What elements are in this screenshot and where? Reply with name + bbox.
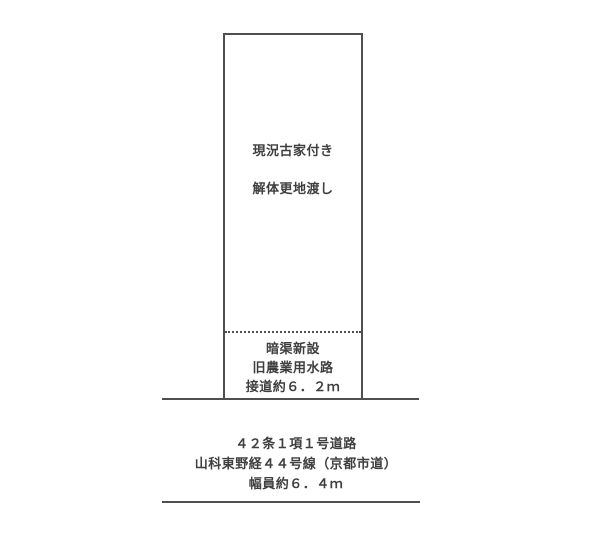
parcel-outline: 現況古家付き 解体更地渡し 暗渠新設 旧農業用水路 接道約６．２ｍ	[223, 33, 363, 400]
parcel-condition-notes: 現況古家付き 解体更地渡し	[225, 145, 361, 197]
waterway-notes: 暗渠新設 旧農業用水路 接道約６．２ｍ	[205, 340, 381, 397]
waterway-boundary-dotted-line	[225, 331, 361, 333]
road-edge-line-top	[162, 398, 419, 400]
parcel-note-current-state: 現況古家付き	[225, 145, 361, 159]
road-edge-line-bottom	[162, 501, 420, 503]
land-plot-diagram: 現況古家付き 解体更地渡し 暗渠新設 旧農業用水路 接道約６．２ｍ ４２条１項１…	[0, 0, 606, 534]
road-label-route-name: 山科東野経４４号線（京都市道）	[141, 455, 451, 475]
waterway-note-frontage: 接道約６．２ｍ	[205, 378, 381, 397]
road-labels: ４２条１項１号道路 山科東野経４４号線（京都市道） 幅員約６．４ｍ	[141, 435, 451, 495]
waterway-note-culvert: 暗渠新設	[205, 340, 381, 359]
parcel-note-delivery-condition: 解体更地渡し	[225, 183, 361, 197]
road-label-classification: ４２条１項１号道路	[141, 435, 451, 455]
road-label-width: 幅員約６．４ｍ	[141, 475, 451, 495]
waterway-note-former-channel: 旧農業用水路	[205, 359, 381, 378]
